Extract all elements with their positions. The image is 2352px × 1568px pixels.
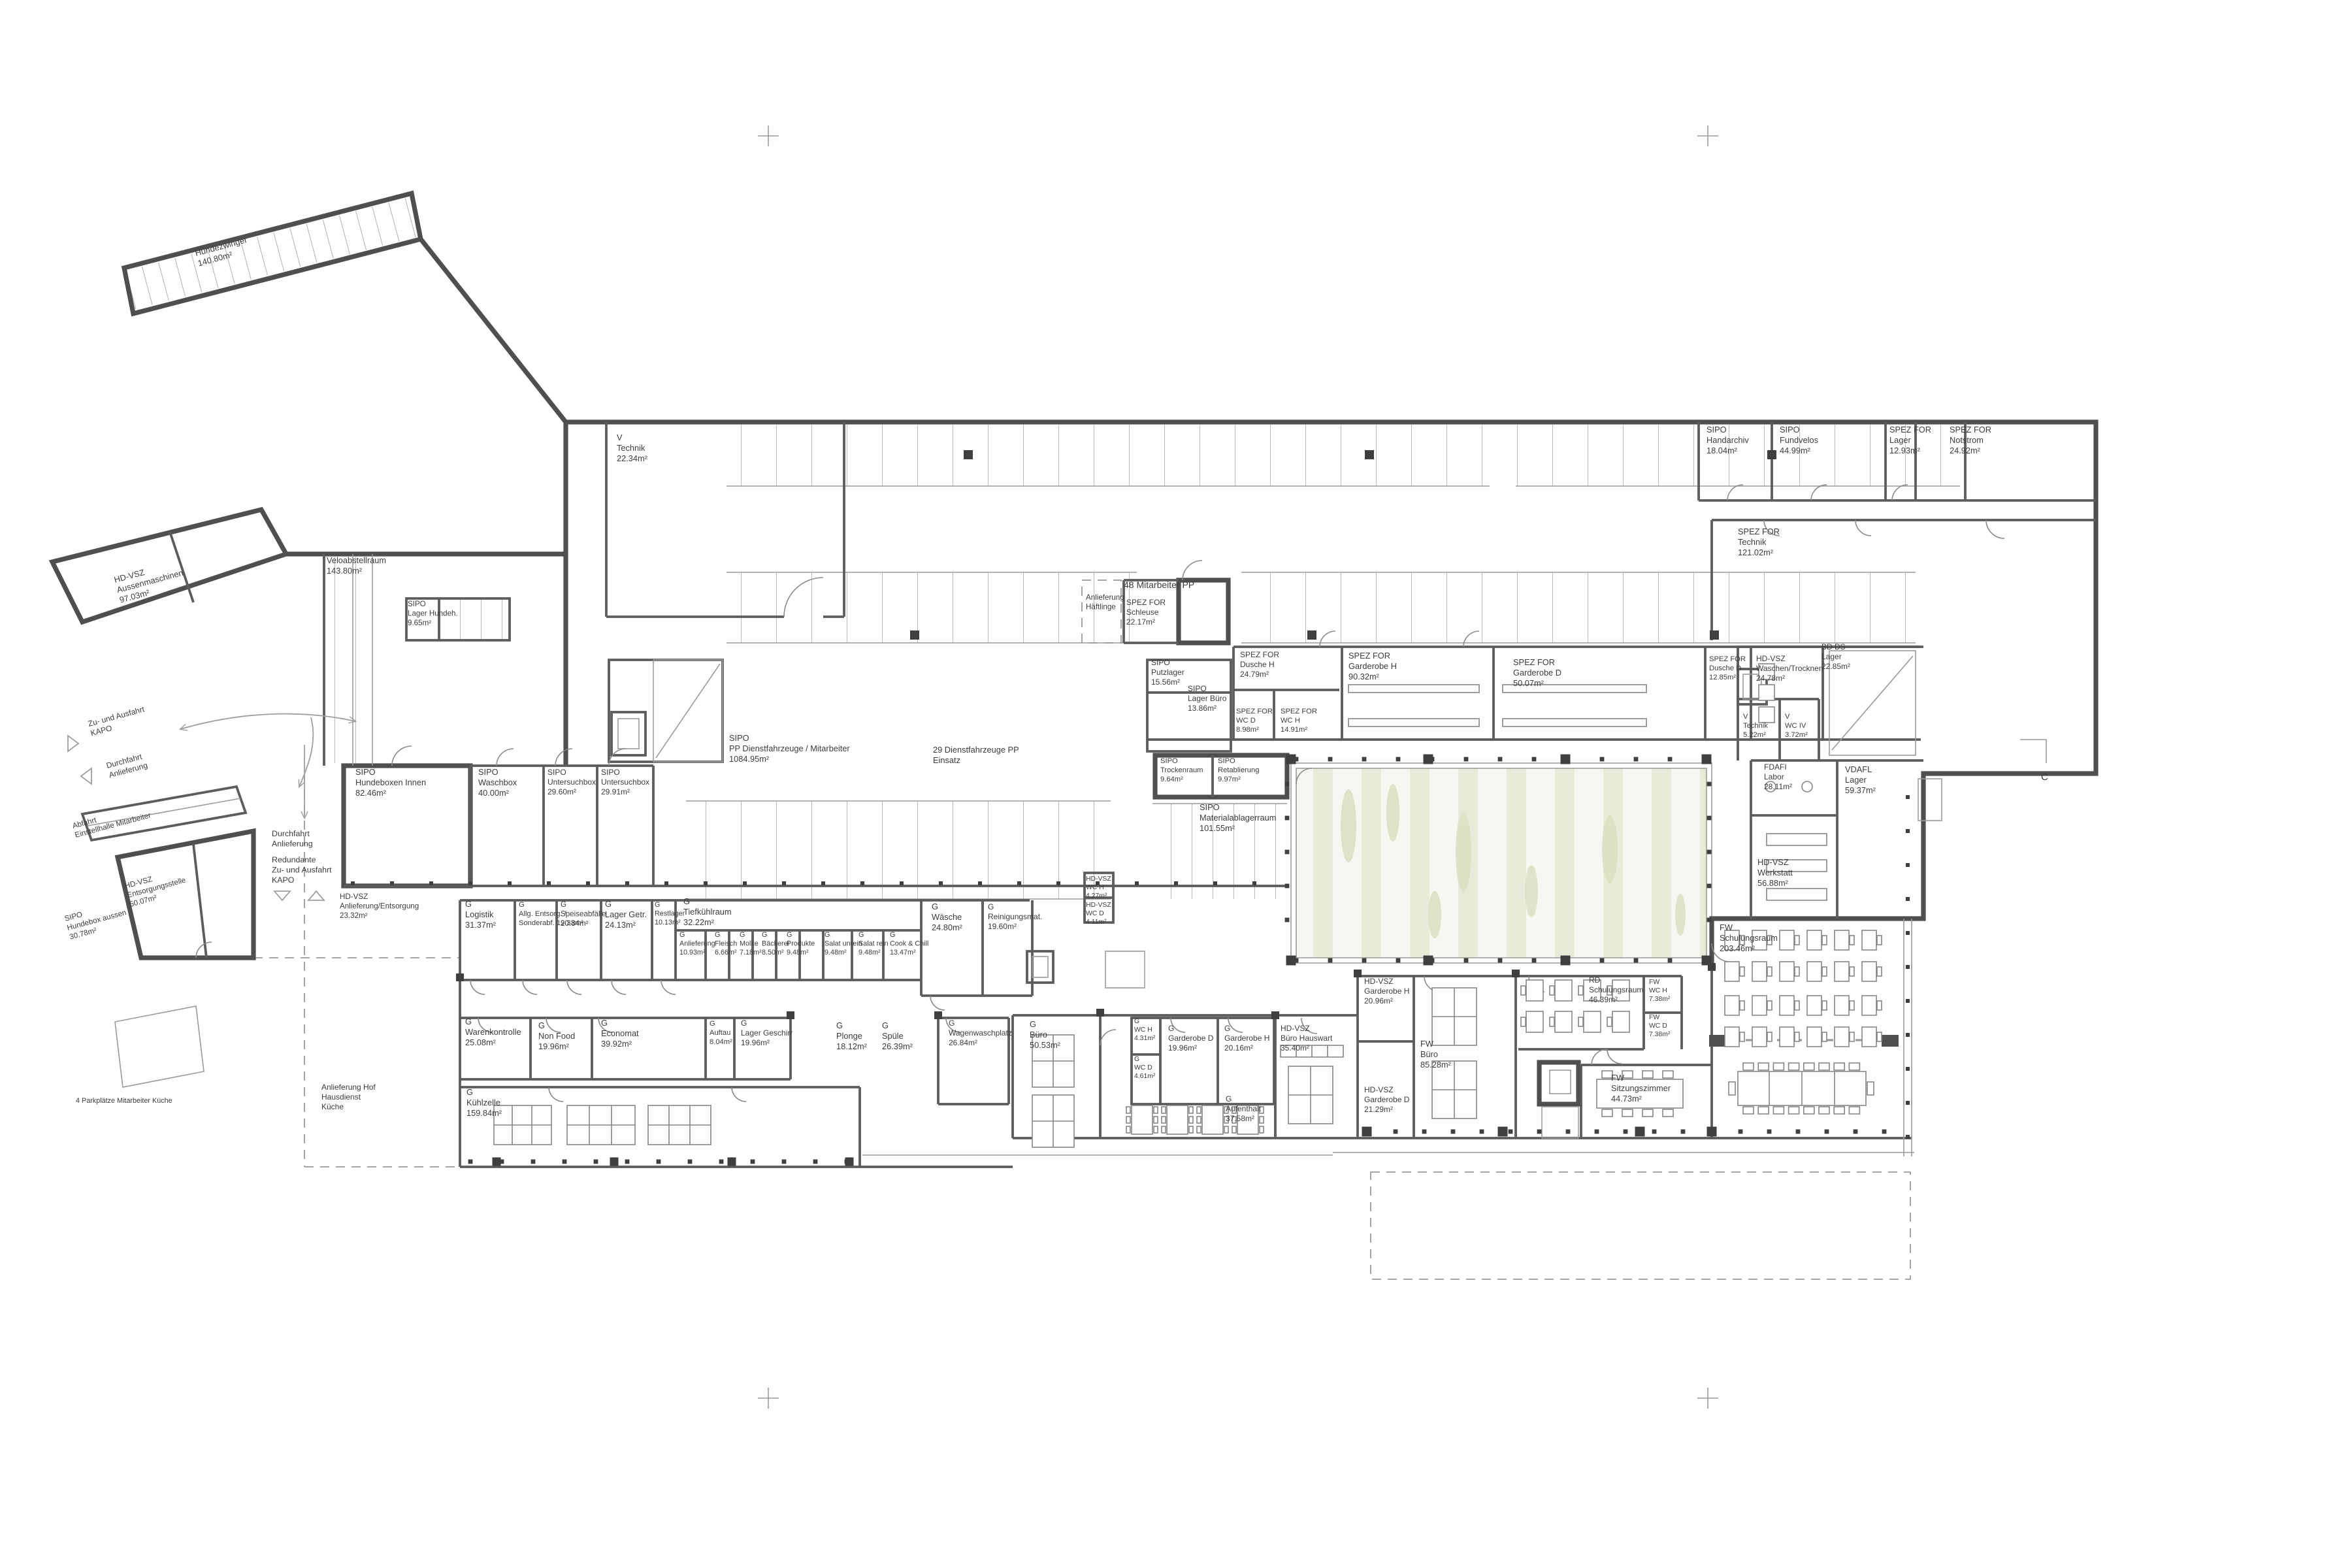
column xyxy=(743,881,747,885)
furniture-item xyxy=(1804,1107,1814,1114)
furniture-item xyxy=(1767,967,1772,976)
column xyxy=(1652,1130,1657,1134)
room-label: 4 Parkplätze Mitarbeiter Küche xyxy=(76,1097,172,1105)
furniture-item xyxy=(1795,967,1799,976)
stall-band-top-left xyxy=(727,425,1490,486)
furniture-item xyxy=(1795,936,1799,945)
column xyxy=(1498,958,1503,963)
furniture-item xyxy=(1789,1107,1799,1114)
column xyxy=(610,1158,619,1166)
furniture-item xyxy=(1189,1126,1193,1133)
furniture-item xyxy=(1807,996,1821,1015)
column xyxy=(1767,1130,1772,1134)
velo-stalls xyxy=(327,557,371,763)
column xyxy=(1285,782,1290,787)
room-label: FWWC H7.38m² xyxy=(1649,979,1671,1003)
room-label: SIPOHundebox aussen30.78m² xyxy=(63,899,129,941)
column xyxy=(563,1160,567,1164)
furniture-item xyxy=(1526,980,1543,1001)
furniture-item xyxy=(1578,1017,1583,1026)
column xyxy=(657,1160,661,1164)
courtyard xyxy=(1291,763,1712,963)
column xyxy=(728,1158,736,1166)
furniture-item xyxy=(1752,962,1767,981)
room-label: HD-VSZEntsorgungsstelle50.07m² xyxy=(123,866,189,908)
column xyxy=(1532,757,1537,762)
column xyxy=(1424,956,1433,966)
column xyxy=(664,881,668,885)
furniture-item xyxy=(1725,996,1739,1015)
small-cells xyxy=(439,600,508,639)
furniture-item xyxy=(1758,1063,1769,1070)
column xyxy=(1767,450,1776,459)
furniture-item xyxy=(1850,1032,1854,1041)
room-label: RedundanteZu- und AusfahrtKAPO xyxy=(272,855,332,885)
furniture-item xyxy=(1819,1063,1829,1070)
furniture-item xyxy=(1819,1107,1829,1114)
column xyxy=(1600,757,1605,762)
column xyxy=(1635,1127,1645,1137)
column xyxy=(1285,884,1290,889)
room-label: SIPOUntersuchbox29.60m² xyxy=(547,768,596,796)
column xyxy=(1509,1130,1513,1134)
furniture-item xyxy=(1822,967,1827,976)
furniture-item xyxy=(1780,962,1794,981)
column xyxy=(1422,1130,1427,1134)
furniture-item xyxy=(1197,1126,1201,1133)
furniture-item xyxy=(1862,930,1876,950)
column xyxy=(1096,1009,1104,1017)
column xyxy=(1825,1130,1829,1134)
furniture-item xyxy=(1154,1117,1158,1123)
room-label: AbfahrtEinstellhalle Mitarbeiter xyxy=(71,802,152,840)
furniture-item xyxy=(1849,1107,1859,1114)
furniture-item xyxy=(1780,1027,1794,1047)
furniture-item xyxy=(1162,1126,1166,1133)
furniture-item xyxy=(1822,1032,1827,1041)
column xyxy=(1394,1130,1398,1134)
column xyxy=(1285,918,1290,923)
furniture-item xyxy=(1167,1105,1188,1134)
furniture-item xyxy=(1126,1107,1130,1113)
column xyxy=(1668,958,1673,963)
column xyxy=(782,881,786,885)
elevator-c xyxy=(1550,1070,1571,1094)
column xyxy=(1396,958,1401,963)
column xyxy=(1498,757,1503,762)
column xyxy=(1906,863,1910,867)
furniture-item xyxy=(1862,996,1876,1015)
room-label: GLogistik31.37m² xyxy=(465,899,497,930)
column xyxy=(900,881,904,885)
column xyxy=(508,881,512,885)
room-label: HD-VSZAnlieferung/Entsorgung23.32m² xyxy=(340,892,419,920)
column xyxy=(1906,999,1910,1003)
room-label: SPEZ FORWC H14.91m² xyxy=(1281,708,1317,734)
room-label: FDAFILabor28.11m² xyxy=(1764,762,1792,791)
column xyxy=(1135,881,1139,885)
column xyxy=(1707,782,1712,787)
room-label: SPEZ FORDusche H24.79m² xyxy=(1240,650,1279,679)
furniture-item xyxy=(1877,1001,1882,1010)
furniture-item xyxy=(1725,962,1739,981)
column xyxy=(1286,956,1296,966)
column xyxy=(1561,956,1571,966)
furniture-item xyxy=(1197,1117,1201,1123)
direction-triangle-icon xyxy=(81,768,91,784)
column xyxy=(1710,630,1719,640)
furniture-item xyxy=(1743,1107,1754,1114)
furniture-item xyxy=(1602,1109,1612,1117)
furniture-item xyxy=(1877,967,1882,976)
furniture-item xyxy=(1642,1109,1653,1117)
room-label: Veloabstellraum143.80m² xyxy=(327,555,386,576)
furniture-item xyxy=(1550,986,1554,995)
column xyxy=(1906,965,1910,969)
room-label: GMolke7.18m² xyxy=(740,931,762,956)
column xyxy=(1451,1130,1456,1134)
column xyxy=(1286,755,1296,764)
room-label: GReinigungsmat.19.60m² xyxy=(988,902,1042,931)
room-label: GSalat unrein9.48m² xyxy=(825,931,862,956)
furniture-item xyxy=(1154,1126,1158,1133)
column xyxy=(1681,1130,1686,1134)
furniture-item xyxy=(1197,1107,1201,1113)
furniture-item xyxy=(1835,1027,1849,1047)
floor-plan-svg: VTechnik22.34m²48 Mitarbeiter PPSIPOHand… xyxy=(0,0,2352,1568)
furniture-item xyxy=(1834,1063,1844,1070)
column xyxy=(1307,630,1316,640)
furniture-item xyxy=(1521,1017,1526,1026)
column xyxy=(1174,881,1178,885)
furniture-item xyxy=(1126,1126,1130,1133)
furniture-item xyxy=(1154,1107,1158,1113)
column xyxy=(1634,958,1639,963)
furniture-item xyxy=(1807,962,1821,981)
column xyxy=(1328,757,1333,762)
column xyxy=(351,881,355,885)
room-label: SIPOWaschbox40.00m² xyxy=(478,767,517,798)
furniture-item xyxy=(1877,936,1882,945)
column xyxy=(493,1158,501,1166)
furniture-item xyxy=(1260,1117,1264,1123)
column xyxy=(1906,1135,1910,1139)
column xyxy=(547,881,551,885)
room-label: SPEZ FORNotstrom24.92m² xyxy=(1950,425,1991,455)
column xyxy=(390,881,394,885)
furniture-item xyxy=(1789,1063,1799,1070)
stair-c xyxy=(1542,1107,1578,1138)
room-label: GWagenwaschplatz26.84m² xyxy=(949,1019,1012,1047)
furniture-item xyxy=(1622,1109,1633,1117)
elevator-d xyxy=(1027,951,1053,983)
column xyxy=(704,881,708,885)
column xyxy=(934,1011,942,1019)
column xyxy=(787,1011,794,1019)
direction-triangle-icon xyxy=(274,891,290,900)
column xyxy=(1882,1130,1887,1134)
furniture-item xyxy=(1162,1107,1166,1113)
column xyxy=(468,1160,473,1164)
column xyxy=(1707,1127,1717,1137)
furniture-item xyxy=(1795,1001,1799,1010)
column xyxy=(845,1158,854,1166)
furniture-item xyxy=(1740,1032,1744,1041)
column xyxy=(1854,1130,1858,1134)
furniture-item xyxy=(1807,930,1821,950)
room-label: SIPORetablierung9.97m² xyxy=(1218,757,1259,783)
column xyxy=(1056,881,1060,885)
column xyxy=(1017,881,1021,885)
column xyxy=(1634,757,1639,762)
furniture-item xyxy=(1862,962,1876,981)
room-label: SIPOLager Büro13.86m² xyxy=(1188,684,1227,713)
room-label: SIPOPutzlager15.56m² xyxy=(1151,658,1184,687)
room-label: VWC IV3.72m² xyxy=(1785,713,1808,739)
furniture-item xyxy=(1578,986,1583,995)
furniture-item xyxy=(1725,1027,1739,1047)
column xyxy=(978,881,982,885)
room-label: GAuftau8.04m² xyxy=(710,1020,732,1046)
room-label: HD-VSZGarderobe H20.96m² xyxy=(1364,977,1409,1005)
room-label: GAnlieferung10.93m² xyxy=(679,931,715,956)
room-label: Zu- und AusfahrtKAPO xyxy=(87,704,148,738)
furniture-item xyxy=(1132,1105,1152,1134)
column xyxy=(1271,1011,1279,1019)
room-label: SIPOTrockenraum9.64m² xyxy=(1160,757,1203,783)
column xyxy=(782,1160,787,1164)
stall-band-einsatz xyxy=(686,801,1111,899)
column xyxy=(1285,816,1290,821)
direction-triangle-icon xyxy=(308,891,324,900)
room-label: SPEZ FORGarderobe D50.07m² xyxy=(1513,657,1561,688)
furniture-item xyxy=(1232,1126,1236,1133)
furniture-item xyxy=(1526,1011,1543,1032)
furniture-item xyxy=(1740,1001,1744,1010)
column xyxy=(1362,1127,1372,1137)
furniture-item xyxy=(1795,1032,1799,1041)
column xyxy=(1708,963,1716,971)
furniture-item xyxy=(1834,1107,1844,1114)
room-label: GLager Getr.24.13m² xyxy=(605,899,647,930)
room-label: GPlonge18.12m² xyxy=(836,1021,868,1051)
furniture-item xyxy=(1773,1063,1784,1070)
room-label: GKühlzelle159.84m² xyxy=(466,1087,502,1118)
room-label: GWC D4.61m² xyxy=(1134,1056,1156,1080)
column xyxy=(468,881,472,885)
column xyxy=(1213,881,1217,885)
furniture-item xyxy=(1743,1063,1754,1070)
furniture-item xyxy=(1804,1063,1814,1070)
room-label: SPEZ FORTechnik121.02m² xyxy=(1738,527,1780,557)
furniture-item xyxy=(1850,936,1854,945)
room-label: SIPOPP Dienstfahrzeuge / Mitarbeiter1084… xyxy=(729,733,850,764)
room-label: GRestlager10.13m² xyxy=(655,901,685,926)
column xyxy=(1668,757,1673,762)
room-label: GSpüle26.39m² xyxy=(882,1021,913,1051)
furniture-item xyxy=(1729,1082,1735,1095)
column xyxy=(1252,881,1256,885)
column xyxy=(456,973,464,981)
furniture-item xyxy=(1835,962,1849,981)
column xyxy=(860,881,864,885)
room-label: DurchfahrtAnlieferung xyxy=(105,751,148,780)
column xyxy=(821,881,825,885)
furniture-item xyxy=(1822,936,1827,945)
column xyxy=(719,1160,724,1164)
column xyxy=(1906,1067,1910,1071)
furniture-item xyxy=(1642,1071,1653,1078)
room-label: FWSchulungsraum203.46m² xyxy=(1720,923,1778,953)
furniture-item xyxy=(1780,996,1794,1015)
room-label: Anlieferung HofHausdienstKüche xyxy=(321,1083,376,1111)
column xyxy=(910,630,919,640)
room-label: GLager Geschirr19.96m² xyxy=(741,1019,792,1047)
column xyxy=(1354,970,1362,977)
column xyxy=(1512,970,1520,977)
column xyxy=(1365,450,1374,459)
room-label: SIPOHundeboxen Innen82.46m² xyxy=(355,767,426,798)
column xyxy=(531,1160,536,1164)
column xyxy=(429,881,433,885)
stall-band-mid-right xyxy=(1241,572,1916,643)
furniture-item xyxy=(1612,1011,1629,1032)
room-label: GWäsche24.80m² xyxy=(932,902,963,932)
direction-triangle-icon xyxy=(68,736,78,751)
furniture-item xyxy=(1740,967,1744,976)
room-label: GWC H4.31m² xyxy=(1134,1018,1156,1042)
room-label: GSpeiseabfälle20.84m² xyxy=(561,900,606,928)
furniture-item xyxy=(1663,1109,1673,1117)
stair-d xyxy=(1105,951,1145,988)
column xyxy=(1739,1130,1743,1134)
room-label: C xyxy=(2041,772,2048,783)
kueche-parking xyxy=(115,1006,204,1087)
furniture-item xyxy=(1752,1027,1767,1047)
column xyxy=(1906,1101,1910,1105)
column xyxy=(1532,958,1537,963)
furniture-item xyxy=(1189,1107,1193,1113)
room-label: GEconomat39.92m² xyxy=(601,1018,639,1049)
furniture-item xyxy=(1126,1117,1130,1123)
column xyxy=(688,1160,693,1164)
room-label: 29 Dienstfahrzeuge PPEinsatz xyxy=(933,745,1019,765)
furniture-item xyxy=(1773,1107,1784,1114)
column xyxy=(594,1160,598,1164)
column xyxy=(1537,1130,1542,1134)
column xyxy=(1464,757,1469,762)
furniture-item xyxy=(1780,930,1794,950)
column xyxy=(1906,931,1910,935)
room-label: VDAFLLager59.37m² xyxy=(1845,764,1876,795)
column xyxy=(625,1160,630,1164)
furniture-item xyxy=(1807,1027,1821,1047)
column xyxy=(586,881,590,885)
column xyxy=(1396,757,1401,762)
room-label: SPEZ FORGarderobe H90.32m² xyxy=(1348,651,1397,681)
furniture-item xyxy=(1767,1001,1772,1010)
room-label: GNon Food19.96m² xyxy=(538,1021,575,1051)
column xyxy=(625,881,629,885)
column xyxy=(1906,897,1910,901)
column xyxy=(813,1160,818,1164)
column xyxy=(1498,1127,1508,1137)
furniture-item xyxy=(1867,1082,1874,1095)
column xyxy=(1707,884,1712,889)
column xyxy=(964,450,973,459)
room-label: GCook & Chill13.47m² xyxy=(890,931,928,956)
column xyxy=(1707,816,1712,821)
column xyxy=(1362,757,1367,762)
room-label: GFleisch6.66m² xyxy=(715,931,737,956)
column xyxy=(1906,829,1910,833)
column xyxy=(1707,850,1712,855)
column xyxy=(939,881,943,885)
furniture-item xyxy=(1555,980,1572,1001)
furniture-item xyxy=(1850,967,1854,976)
furniture-item xyxy=(1189,1117,1193,1123)
furniture-item xyxy=(1607,1017,1612,1026)
column xyxy=(1624,1130,1628,1134)
column xyxy=(1796,1130,1801,1134)
column xyxy=(1362,958,1367,963)
furniture-item xyxy=(1862,1027,1876,1047)
column xyxy=(1464,958,1469,963)
column xyxy=(1328,958,1333,963)
room-label: VTechnik22.34m² xyxy=(617,433,648,463)
furniture-item xyxy=(1162,1117,1166,1123)
furniture-item xyxy=(1260,1126,1264,1133)
column xyxy=(1702,755,1712,764)
room-label: HD-VSZGarderobe D21.29m² xyxy=(1364,1085,1410,1114)
column xyxy=(1566,1130,1571,1134)
room-label: 48 Mitarbeiter PP xyxy=(1124,580,1194,590)
floor-plan-sheet: VTechnik22.34m²48 Mitarbeiter PPSIPOHand… xyxy=(0,0,2352,1568)
furniture-item xyxy=(1663,1071,1673,1078)
furniture-item xyxy=(1877,1032,1882,1041)
room-label: SPEZ FORWC D8.98m² xyxy=(1236,708,1273,734)
column xyxy=(1424,755,1433,764)
room-label: HD-VSZWerkstatt56.88m² xyxy=(1757,857,1793,888)
furniture-item xyxy=(1202,1105,1223,1134)
column xyxy=(1561,755,1571,764)
furniture-item xyxy=(1584,1011,1601,1032)
room-label: GWarenkontrolle25.08m² xyxy=(465,1017,521,1047)
column xyxy=(1285,850,1290,855)
column xyxy=(1707,918,1712,923)
room-label: SIPOUntersuchbox29.91m² xyxy=(601,768,649,796)
column xyxy=(1906,795,1910,799)
furniture-item xyxy=(1767,1032,1772,1041)
column xyxy=(1600,958,1605,963)
furniture-item xyxy=(1849,1063,1859,1070)
stall-band-mid-left xyxy=(727,572,1137,643)
furniture-item xyxy=(1835,996,1849,1015)
room-label: GGarderobe H20.16m² xyxy=(1224,1024,1269,1053)
furniture-item xyxy=(1758,1107,1769,1114)
room-label: DurchfahrtAnlieferung xyxy=(272,829,313,849)
room-label: HD-VSZWaschen/Trocknen24.78m² xyxy=(1756,654,1823,683)
room-label: SPEZ FORDusche D12.85m² xyxy=(1709,655,1746,681)
furniture-item xyxy=(1550,1017,1554,1026)
furniture-item xyxy=(1224,1126,1228,1133)
furniture-item xyxy=(1822,1001,1827,1010)
column xyxy=(1480,1130,1484,1134)
column xyxy=(751,1160,755,1164)
column xyxy=(1595,1130,1599,1134)
furniture-item xyxy=(1850,1001,1854,1010)
furniture-item xyxy=(1835,930,1849,950)
